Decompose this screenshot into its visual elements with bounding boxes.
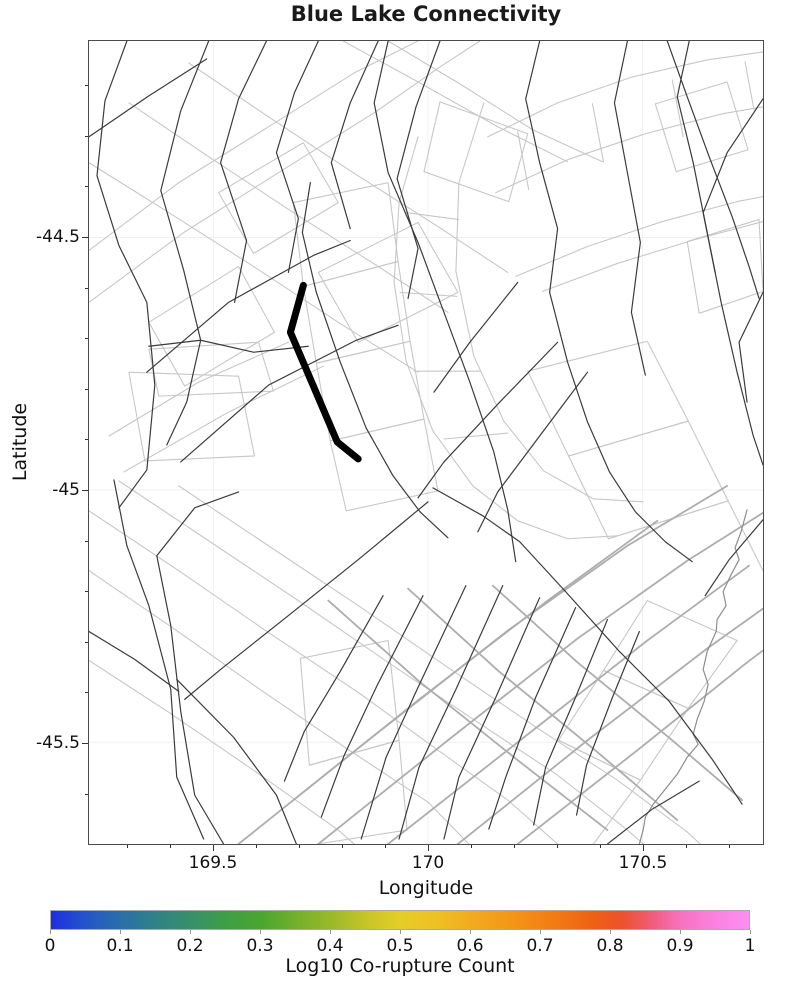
colorbar-tick-label: 0.1	[106, 936, 133, 956]
colorbar-tick	[540, 930, 541, 934]
colorbar-tick	[190, 930, 191, 934]
colorbar-tick	[330, 930, 331, 934]
colorbar-tick-label: 0.7	[526, 936, 553, 956]
x-tick-label: 170.5	[619, 853, 668, 873]
colorbar-tick-label: 0.6	[456, 936, 483, 956]
colorbar-gradient	[51, 911, 749, 929]
fault-outline-light	[488, 52, 763, 137]
fault-trace-dark	[147, 241, 350, 373]
colorbar-tick	[260, 930, 261, 934]
colorbar-tick-label: 0.3	[246, 936, 273, 956]
x-tick	[557, 845, 558, 848]
fault-outline-light	[318, 223, 458, 343]
fault-outline-light	[569, 421, 729, 539]
highlighted-fault	[290, 285, 358, 459]
colorbar-tick	[120, 930, 121, 934]
fault-outline-light	[687, 220, 763, 314]
x-tick	[471, 845, 472, 848]
fault-trace-dark	[433, 488, 742, 804]
y-tick-label: -45	[20, 480, 80, 500]
fault-outline-light	[89, 41, 480, 302]
fault-trace-dark	[321, 596, 423, 817]
x-tick	[643, 845, 644, 851]
fault-outline-light	[543, 222, 763, 292]
fault-outline-light	[496, 107, 763, 193]
fault-trace-dark	[157, 492, 239, 844]
y-tick	[82, 490, 88, 491]
fault-outline-light	[518, 132, 529, 190]
x-tick	[127, 845, 128, 848]
fault-outline-light	[149, 342, 274, 396]
fault-outline-light	[129, 103, 448, 312]
colorbar	[50, 910, 750, 930]
colorbar-tick	[470, 930, 471, 934]
x-tick-label: 169.5	[189, 853, 238, 873]
x-tick	[729, 845, 730, 848]
fault-outline-light	[149, 266, 275, 386]
x-tick	[256, 845, 257, 848]
y-tick	[85, 338, 88, 339]
fault-trace-dark	[526, 41, 693, 562]
fault-outline-light	[406, 213, 459, 220]
fault-outline-light	[593, 104, 604, 162]
fault-trace-dark	[374, 41, 516, 562]
fault-outline-light	[89, 571, 469, 844]
colorbar-tick	[400, 930, 401, 934]
fault-outline-light	[179, 486, 700, 844]
colorbar-tick-label: 0.2	[176, 936, 203, 956]
fault-trace-dark	[89, 632, 179, 692]
x-tick	[600, 845, 601, 848]
fault-outline-light	[89, 660, 354, 844]
fault-trace-dark	[418, 342, 558, 498]
colorbar-tick	[610, 930, 611, 934]
y-tick	[85, 591, 88, 592]
fault-outline-light	[124, 366, 323, 472]
y-tick	[85, 389, 88, 390]
colorbar-tick-label: 0.4	[316, 936, 343, 956]
fault-rail-line	[239, 486, 728, 844]
fault-outline-light	[343, 41, 567, 162]
x-tick	[514, 845, 515, 848]
fault-outline-light	[89, 41, 418, 250]
y-tick	[85, 439, 88, 440]
y-axis-label: Latitude	[9, 403, 31, 481]
page-title: Blue Lake Connectivity	[88, 2, 764, 26]
colorbar-tick-label: 0	[45, 936, 56, 956]
fault-outline-light	[444, 433, 508, 439]
fault-outline-light	[330, 419, 438, 511]
y-tick	[85, 186, 88, 187]
y-tick-label: -45.5	[20, 733, 80, 753]
x-tick	[385, 845, 386, 848]
fault-outline-light	[89, 163, 418, 372]
fault-trace-dark	[739, 292, 763, 402]
y-tick	[85, 85, 88, 86]
y-tick	[82, 237, 88, 238]
fault-trace-dark	[434, 282, 518, 392]
coastline	[639, 510, 747, 844]
y-tick	[82, 743, 88, 744]
fault-trace-dark	[221, 41, 267, 302]
y-tick	[85, 541, 88, 542]
fault-rail-line	[458, 609, 763, 844]
map-svg	[89, 41, 763, 844]
colorbar-tick-label: 0.8	[596, 936, 623, 956]
y-tick	[85, 794, 88, 795]
y-tick	[85, 136, 88, 137]
x-tick	[170, 845, 171, 848]
fault-trace-dark	[284, 596, 383, 782]
colorbar-tick	[680, 930, 681, 934]
y-tick	[85, 288, 88, 289]
x-tick	[686, 845, 687, 848]
fault-outline-light	[388, 41, 602, 162]
y-tick-label: -44.5	[20, 227, 80, 247]
fault-outline-light	[745, 62, 754, 110]
colorbar-tick-label: 0.9	[666, 936, 693, 956]
colorbar-tick	[50, 930, 51, 934]
fault-trace-dark	[161, 41, 209, 445]
fault-outline-light	[655, 82, 748, 172]
fault-trace-dark	[614, 41, 645, 375]
fault-trace-dark	[361, 586, 466, 839]
fault-trace-dark	[399, 586, 503, 839]
x-axis-label: Longitude	[88, 877, 764, 899]
colorbar-tick-label: 0.5	[386, 936, 413, 956]
x-tick	[342, 845, 343, 848]
y-tick	[85, 642, 88, 643]
fault-trace-dark	[397, 41, 440, 298]
fault-outline-light	[129, 372, 255, 461]
fault-outline-light	[603, 601, 737, 709]
fault-outline-light	[293, 183, 398, 287]
fault-trace-dark	[577, 632, 640, 816]
colorbar-tick-label: 1	[745, 936, 756, 956]
x-tick	[428, 845, 429, 851]
y-tick	[85, 692, 88, 693]
colorbar-tick	[750, 930, 751, 934]
fault-outline-light	[528, 341, 689, 456]
fault-trace-dark	[703, 99, 763, 273]
fault-outline-light	[109, 342, 288, 436]
fault-rail-line	[318, 513, 763, 844]
fault-trace-dark	[114, 480, 204, 839]
fault-trace-dark	[607, 781, 699, 844]
map-plot	[88, 40, 764, 845]
fault-outline-light	[119, 481, 643, 844]
colorbar-label: Log10 Co-rupture Count	[0, 955, 800, 977]
x-tick-label: 170	[412, 853, 444, 873]
x-tick	[213, 845, 214, 851]
figure: Blue Lake Connectivity 169.5170170.5-44.…	[0, 0, 800, 993]
fault-outline-light	[672, 80, 683, 137]
x-tick	[299, 845, 300, 848]
